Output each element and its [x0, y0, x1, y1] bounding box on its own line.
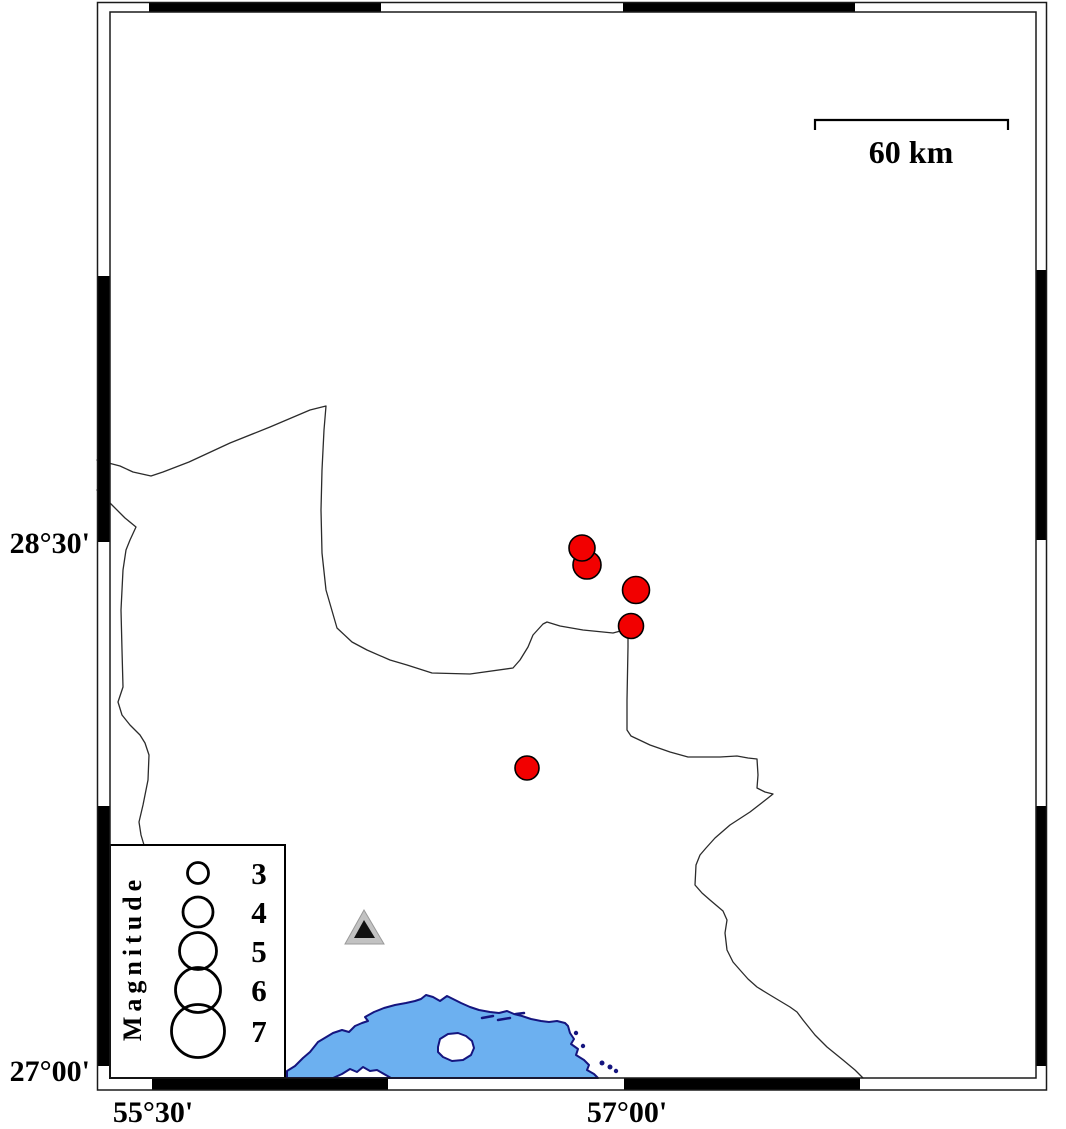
sea-layer: [287, 995, 618, 1078]
earthquakes-layer: [515, 535, 650, 780]
lat-label-27-00: 27°00': [10, 1055, 90, 1088]
earthquake-marker: [619, 614, 644, 639]
legend-magnitude-label: 4: [251, 895, 267, 930]
earthquake-marker: [515, 756, 539, 780]
legend-magnitude-label: 3: [251, 856, 267, 891]
earthquake-marker: [569, 535, 595, 561]
lon-label-57-00: 57°00': [587, 1096, 667, 1129]
scale-bar-label: 60 km: [869, 134, 954, 170]
island: [438, 1033, 474, 1061]
scale-bar: 60 km: [815, 120, 1008, 170]
lon-label-55-30: 55°30': [113, 1096, 193, 1129]
seismicity-map: 60 km Magnitude 34567 28°30' 27°00' 55°3…: [0, 0, 1066, 1129]
map-canvas: 60 km Magnitude 34567 28°30' 27°00' 55°3…: [0, 0, 1066, 1129]
lat-label-28-30: 28°30': [10, 527, 90, 560]
legend-magnitude-label: 6: [251, 973, 267, 1008]
magnitude-legend: Magnitude 34567: [110, 845, 285, 1078]
legend-magnitude-label: 5: [251, 934, 267, 969]
legend-title: Magnitude: [118, 875, 147, 1041]
legend-magnitude-label: 7: [251, 1014, 267, 1049]
station-marker: [345, 910, 384, 944]
scale-bar-bracket: [815, 120, 1008, 130]
earthquake-marker: [623, 577, 650, 604]
province-boundary-west: [97, 490, 149, 845]
